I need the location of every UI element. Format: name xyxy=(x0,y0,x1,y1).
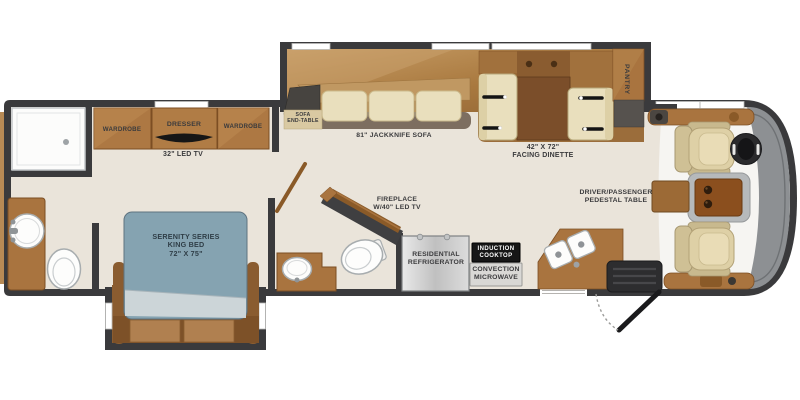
fridge-hinge xyxy=(444,234,450,240)
faucet-knob xyxy=(11,220,16,225)
bed-storage-left xyxy=(130,320,180,342)
faucet-spout xyxy=(9,228,18,234)
induction-cooktop-label: INDUCTION COOKTOP xyxy=(473,246,519,259)
fireplace-label: FIREPLACE W/40" LED TV xyxy=(357,196,437,212)
driver-seat xyxy=(675,122,734,176)
sofa-cushion xyxy=(369,91,414,121)
door-swing-arc xyxy=(596,294,618,330)
dinette-bench-left-back xyxy=(479,74,487,140)
cockpit-console-table xyxy=(688,173,750,222)
pantry-label: PANTRY xyxy=(622,57,630,101)
fridge-hinge xyxy=(417,234,423,240)
pedestal-table xyxy=(652,181,689,212)
shower xyxy=(12,108,85,170)
dinette-bench-right-back xyxy=(605,88,613,140)
wardrobe-left-label: WARDROBE xyxy=(92,126,152,133)
faucet-knob xyxy=(11,238,16,243)
rear-toilet xyxy=(48,249,81,289)
sofa-cushion xyxy=(322,91,367,121)
jackknife-sofa-label: 81" JACKKNIFE SOFA xyxy=(334,132,454,140)
pedestal-table-label: DRIVER/PASSENGER PEDESTAL TABLE xyxy=(576,189,656,205)
passenger-seat xyxy=(675,222,734,276)
pantry-base-counter xyxy=(614,100,644,127)
facing-dinette-label: 42" X 72" FACING DINETTE xyxy=(498,144,588,161)
floorplan-canvas: WARDROBE DRESSER WARDROBE 32" LED TV SOF… xyxy=(0,0,800,400)
sofa-cushion xyxy=(416,91,461,121)
faucet-knob xyxy=(295,278,300,283)
wardrobe-right-label: WARDROBE xyxy=(214,123,272,130)
sofa-end-table xyxy=(284,85,320,114)
king-bed-label: SERENITY SERIES KING BED 72" X 75" xyxy=(136,233,236,258)
rear-bath-vanity xyxy=(8,198,45,290)
dinette-table xyxy=(517,77,570,140)
cabinet-knob xyxy=(551,61,557,67)
dinette-overhead-center xyxy=(517,51,570,77)
shower-drain xyxy=(63,139,69,145)
dresser-label: DRESSER xyxy=(154,121,214,129)
bed-storage-right xyxy=(184,320,234,342)
sofa-end-table-label: SOFA END-TABLE xyxy=(283,112,323,124)
steering-wheel-icon xyxy=(731,134,762,165)
convection-microwave-label: CONVECTION MICROWAVE xyxy=(466,266,526,282)
entry-steps xyxy=(607,261,662,292)
refrigerator-label: RESIDENTIAL REFRIGERATOR xyxy=(401,251,471,267)
facing-dinette xyxy=(479,51,617,140)
tv-32-label: 32" LED TV xyxy=(153,151,213,159)
cabinet-knob xyxy=(526,61,532,67)
entry-door-panel xyxy=(619,292,659,330)
